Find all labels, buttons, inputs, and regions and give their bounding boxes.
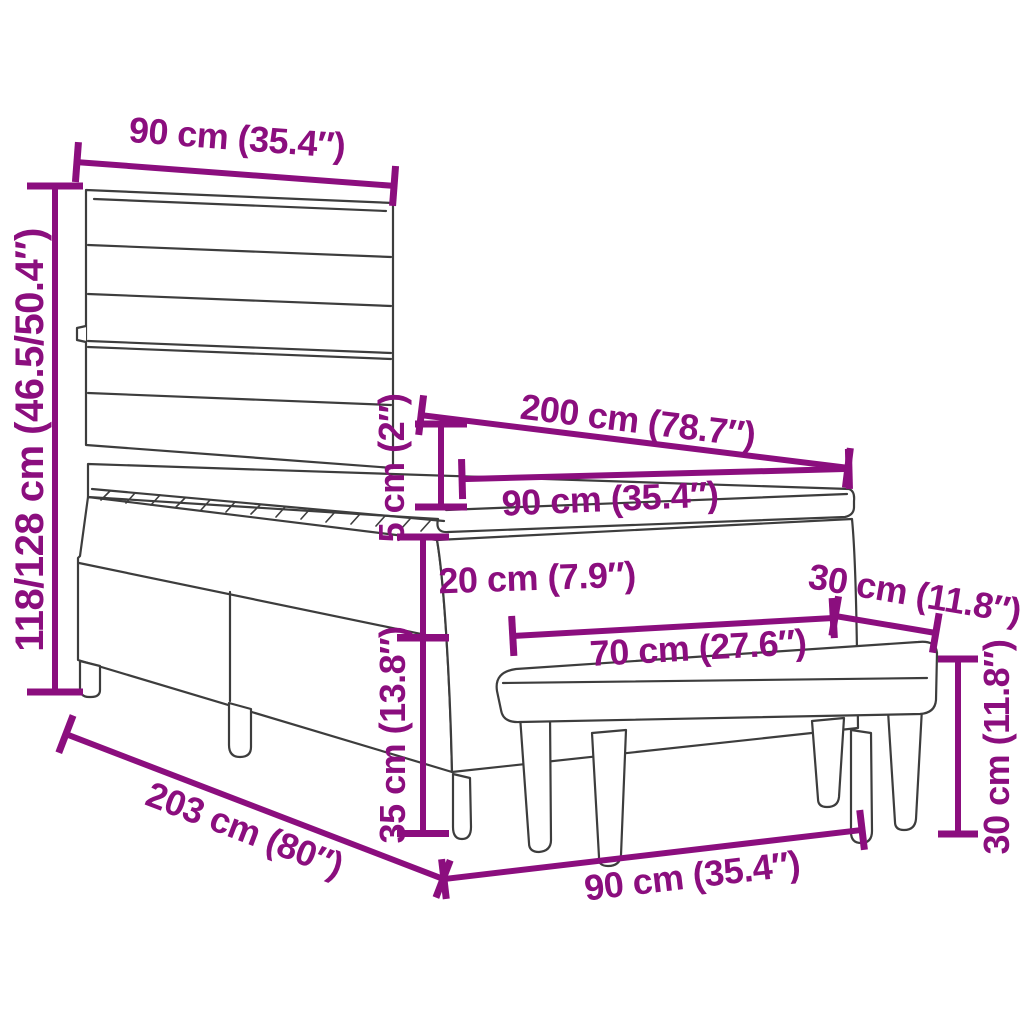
dim-headboard-width-label: 90 cm (35.4″) xyxy=(128,109,347,166)
dim-bench-height-label: 30 cm (11.8″) xyxy=(976,640,1017,855)
dim-box-section-height-label: 20 cm (7.9″) xyxy=(438,554,637,602)
dim-base-height-label: 35 cm (13.8″) xyxy=(372,627,413,844)
bed-leg-front xyxy=(453,774,471,839)
bed-leg-middle xyxy=(229,703,251,757)
headboard-connector xyxy=(77,326,86,342)
diagram-canvas: 90 cm (35.4″) 118/128 cm (46.5/50.4″) 20… xyxy=(0,0,1024,1024)
bench-leg-2 xyxy=(592,730,626,866)
bench-leg-1 xyxy=(520,713,551,852)
dim-height-range-label: 118/128 cm (46.5/50.4″) xyxy=(8,228,52,652)
bench-leg-3 xyxy=(812,718,844,807)
bench-leg-4 xyxy=(888,708,922,830)
dim-bench-height-line xyxy=(938,659,978,834)
headboard xyxy=(86,190,393,468)
bed-dimension-diagram: 90 cm (35.4″) 118/128 cm (46.5/50.4″) 20… xyxy=(0,0,1024,1024)
dim-mattress-thickness-label: 5 cm (2″) xyxy=(371,394,412,543)
